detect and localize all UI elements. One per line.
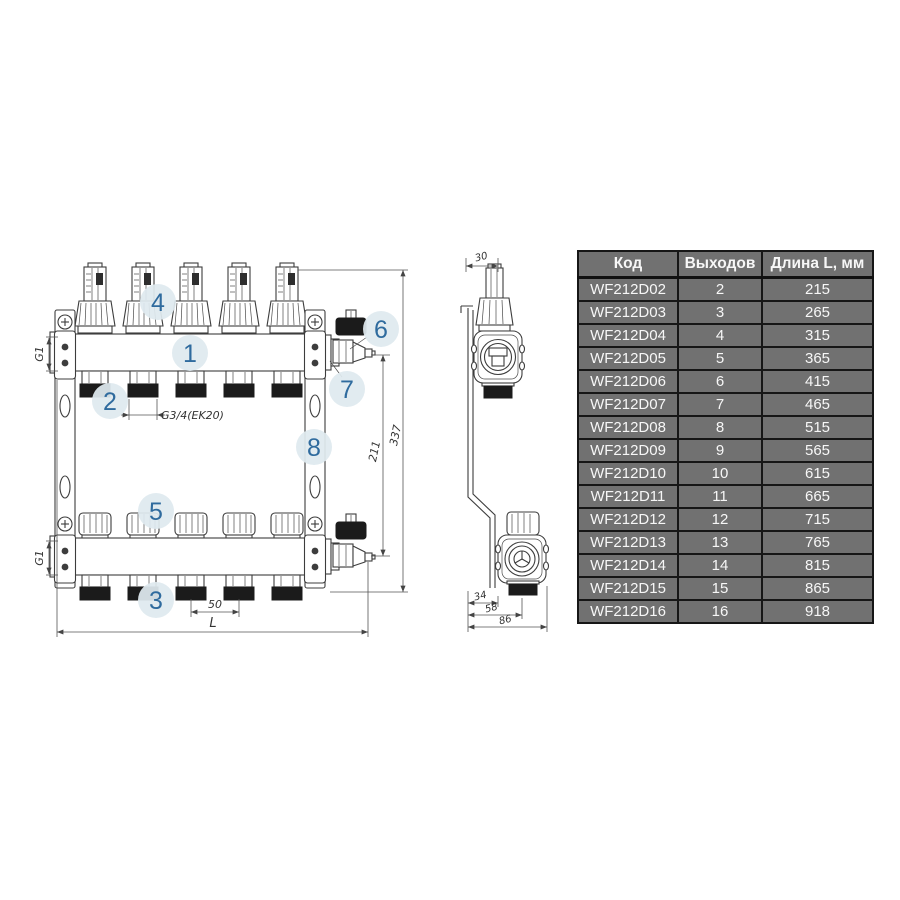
left-bracket	[55, 310, 76, 588]
header-length: Длина L, мм	[762, 251, 873, 278]
cell-length: 465	[762, 393, 873, 416]
cell-length: 265	[762, 301, 873, 324]
cell-code: WF212D13	[578, 531, 678, 554]
table-row: WF212D08 8 515	[578, 416, 873, 439]
cell-outputs: 11	[678, 485, 762, 508]
table-row: WF212D12 12 715	[578, 508, 873, 531]
cell-outputs: 6	[678, 370, 762, 393]
cell-outputs: 5	[678, 347, 762, 370]
cell-length: 665	[762, 485, 873, 508]
callout-5: 5	[138, 493, 174, 529]
side-supply-body	[474, 331, 522, 383]
cell-outputs: 16	[678, 600, 762, 623]
callout-6: 6	[363, 311, 399, 347]
dim-86: 86	[498, 614, 513, 628]
cell-outputs: 7	[678, 393, 762, 416]
table-row: WF212D05 5 365	[578, 347, 873, 370]
cell-code: WF212D11	[578, 485, 678, 508]
header-outputs: Выходов	[678, 251, 762, 278]
cell-outputs: 2	[678, 278, 762, 302]
callout-8: 8	[296, 429, 332, 465]
cell-code: WF212D14	[578, 554, 678, 577]
table-row: WF212D14 14 815	[578, 554, 873, 577]
cell-length: 215	[762, 278, 873, 302]
table-row: WF212D04 4 315	[578, 324, 873, 347]
svg-text:4: 4	[151, 289, 165, 317]
svg-text:8: 8	[307, 434, 321, 462]
dim-50: 50	[208, 598, 222, 611]
return-manifold	[50, 513, 375, 600]
dim-34: 34	[473, 590, 488, 604]
callout-2: 2	[92, 383, 128, 419]
callout-7: 7	[329, 371, 365, 407]
table-row: WF212D09 9 565	[578, 439, 873, 462]
return-drain-valve	[333, 514, 375, 567]
cell-code: WF212D10	[578, 462, 678, 485]
cell-code: WF212D12	[578, 508, 678, 531]
manifold-catalog-page: G1 G1 G3/4(EK20) 50 L	[0, 0, 900, 900]
table-row: WF212D10 10 615	[578, 462, 873, 485]
cell-length: 565	[762, 439, 873, 462]
cell-code: WF212D04	[578, 324, 678, 347]
dim-g1-bottom: G1	[33, 550, 46, 566]
callout-4: 4	[140, 284, 176, 320]
dim-211: 211	[366, 440, 383, 463]
cell-code: WF212D06	[578, 370, 678, 393]
svg-text:6: 6	[374, 316, 388, 344]
dim-g1-top: G1	[33, 346, 46, 362]
cell-outputs: 9	[678, 439, 762, 462]
table-row: WF212D13 13 765	[578, 531, 873, 554]
table-row: WF212D06 6 415	[578, 370, 873, 393]
cell-outputs: 13	[678, 531, 762, 554]
cell-code: WF212D03	[578, 301, 678, 324]
table-row: WF212D11 11 665	[578, 485, 873, 508]
cell-outputs: 12	[678, 508, 762, 531]
callout-1: 1	[172, 335, 208, 371]
dim-337: 337	[387, 424, 404, 447]
spec-table: Код Выходов Длина L, мм WF212D02 2 215 W…	[577, 250, 874, 624]
side-view: 30 34 58 86	[461, 251, 549, 632]
cell-length: 918	[762, 600, 873, 623]
svg-text:7: 7	[340, 376, 354, 404]
callout-3: 3	[138, 582, 174, 618]
cell-code: WF212D15	[578, 577, 678, 600]
cell-length: 815	[762, 554, 873, 577]
cell-outputs: 10	[678, 462, 762, 485]
cell-code: WF212D05	[578, 347, 678, 370]
cell-outputs: 15	[678, 577, 762, 600]
cell-length: 865	[762, 577, 873, 600]
cell-length: 515	[762, 416, 873, 439]
cell-outputs: 4	[678, 324, 762, 347]
svg-text:5: 5	[149, 498, 163, 526]
cell-outputs: 14	[678, 554, 762, 577]
svg-text:3: 3	[149, 587, 163, 615]
spec-table-header-row: Код Выходов Длина L, мм	[578, 251, 873, 278]
dim-58: 58	[484, 602, 499, 616]
cell-length: 415	[762, 370, 873, 393]
supply-manifold	[50, 263, 375, 397]
cell-code: WF212D08	[578, 416, 678, 439]
dim-g34: G3/4(EK20)	[161, 409, 224, 422]
cell-code: WF212D16	[578, 600, 678, 623]
cell-length: 715	[762, 508, 873, 531]
cell-length: 365	[762, 347, 873, 370]
svg-text:2: 2	[103, 388, 117, 416]
cell-length: 315	[762, 324, 873, 347]
cell-length: 615	[762, 462, 873, 485]
cell-outputs: 8	[678, 416, 762, 439]
svg-text:1: 1	[183, 340, 197, 368]
header-code: Код	[578, 251, 678, 278]
cell-code: WF212D02	[578, 278, 678, 302]
cell-code: WF212D07	[578, 393, 678, 416]
table-row: WF212D02 2 215	[578, 278, 873, 302]
return-body	[62, 538, 325, 575]
table-row: WF212D15 15 865	[578, 577, 873, 600]
table-row: WF212D03 3 265	[578, 301, 873, 324]
cell-length: 765	[762, 531, 873, 554]
table-row: WF212D16 16 918	[578, 600, 873, 623]
front-view	[50, 263, 375, 600]
table-row: WF212D07 7 465	[578, 393, 873, 416]
cell-code: WF212D09	[578, 439, 678, 462]
cell-outputs: 3	[678, 301, 762, 324]
dim-30: 30	[474, 251, 489, 265]
dim-L: L	[209, 616, 216, 631]
